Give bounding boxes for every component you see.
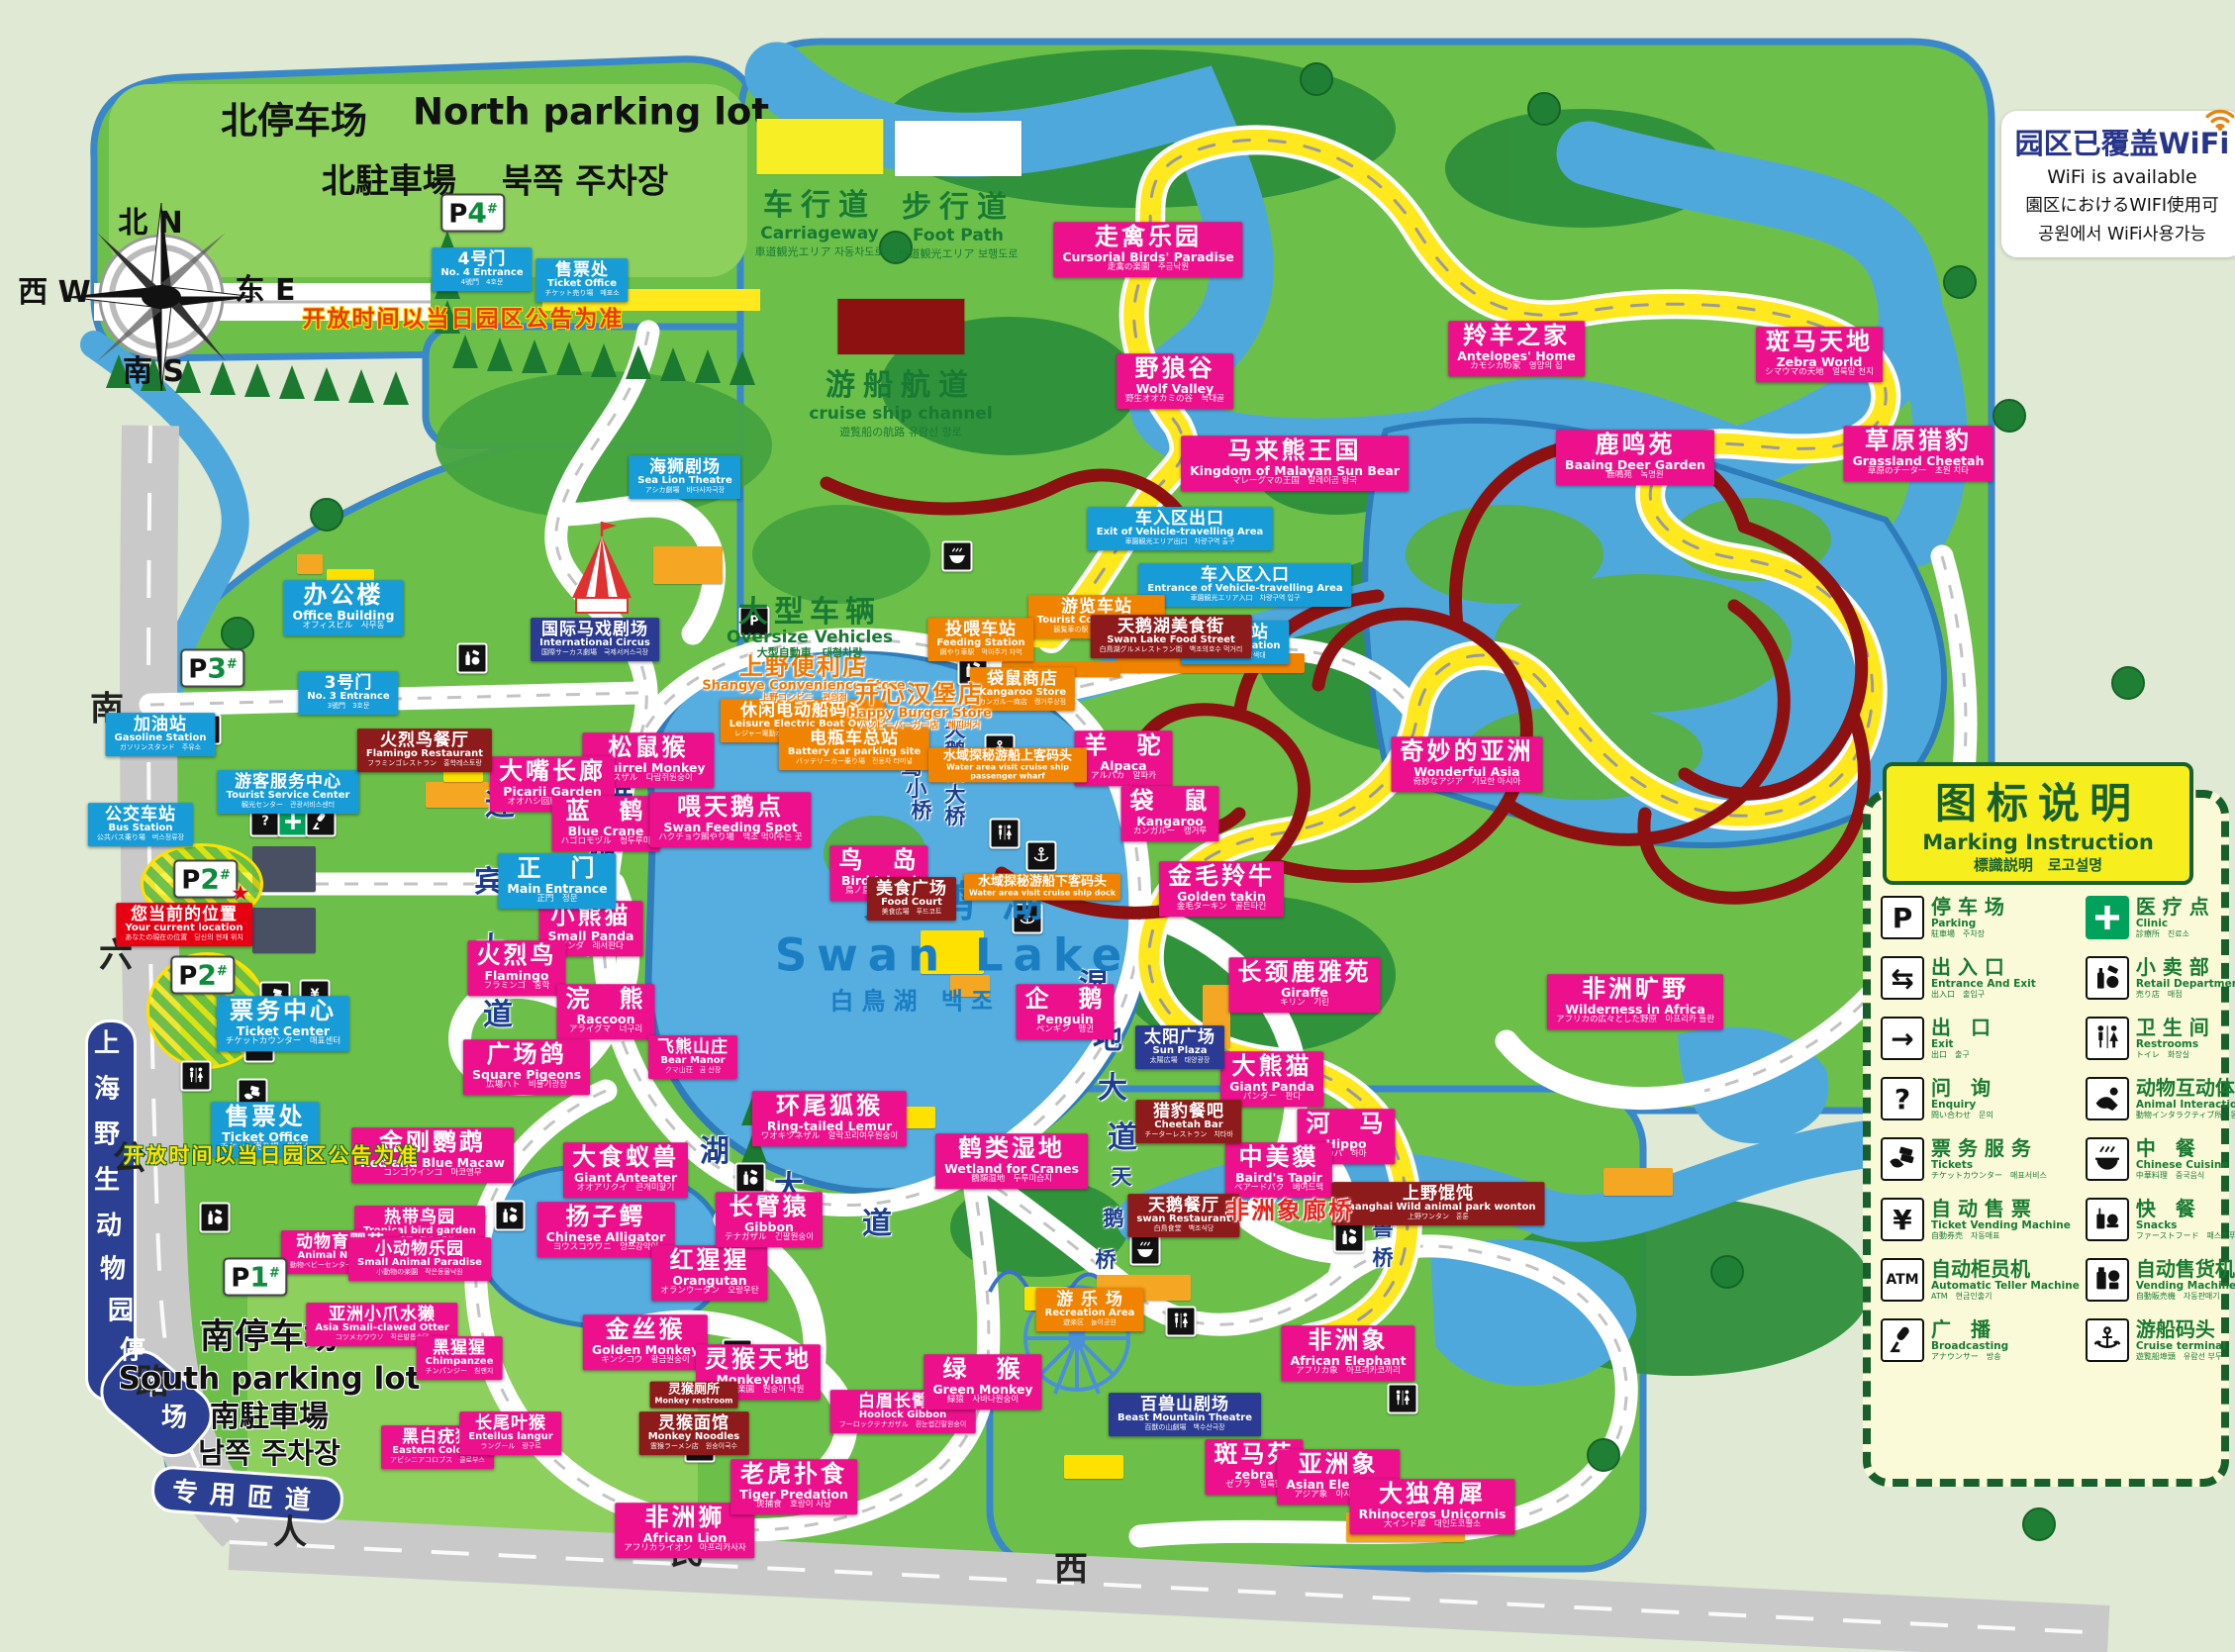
label-feeding-station: 投喂车站Feeding Station餌やり車駅 먹이주기 차역 — [927, 618, 1033, 661]
label-wonderful-asia: 奇妙的亚洲Wonderful Asia奇妙なアジア 기묘한 아시아 — [1392, 736, 1543, 792]
legend-item-tickets: 票 务 服 务Ticketsチケットカウンター 매표서비스 — [1881, 1137, 2080, 1181]
street-char: 湖 — [700, 1126, 729, 1170]
text-label-oversize-vehicles: 大型车辆Oversize Vehicles大型自動車 대형차량 — [727, 596, 893, 659]
label-cheetah-bar: 猎豹餐吧Cheetah Barチーターレストラン 치타바 — [1135, 1100, 1241, 1143]
tree-icon — [2111, 666, 2145, 700]
label-entellus-langur: 长尾叶猴Entellus langurラングール 랑구르 — [459, 1411, 561, 1455]
label-antelopes-home: 羚羊之家Antelopes' Homeカモシカの家 영양의 집 — [1448, 321, 1585, 376]
label-international-circus: 国际马戏剧场International Circus国際サーカス劇場 국제서커스… — [531, 618, 659, 661]
text-label-happy-burger-store: 开心汉堡店Happy Burger Storeハッピーバーガー店 해피버거 — [847, 682, 992, 732]
parking-icon: P — [1881, 896, 1924, 939]
north-parking-lot-title: 北停车场North parking lot 北駐車場북쪽 주차장 — [221, 91, 769, 203]
tvm-icon: ¥ — [1881, 1198, 1924, 1241]
legend-item-snacks: 快 餐Snacksファーストフード 패스트푸드 — [2086, 1198, 2235, 1241]
label-raccoon: 浣 熊Raccoonアライグマ 너구리 — [557, 984, 655, 1039]
label-gasoline-station: 加油站Gasoline Stationガソリンスタンド 주유소 — [106, 713, 216, 756]
label-entrance-of-vehicle-travelling-area: 车入区入口Entrance of Vehicle-travelling Area… — [1138, 563, 1351, 607]
label-rhinoceros-unicornis: 大独角犀Rhinoceros Unicornis大インド犀 대인도코뿔소 — [1350, 1479, 1515, 1534]
opening-hours-notice: 开放时间以当日园区公告为准 — [124, 1144, 420, 1167]
legend-item-clinic: 医 疗 点Clinic診療所 진료소 — [2086, 896, 2235, 939]
parking-badge-p3: P3# — [180, 649, 244, 688]
wifi-notice-box: 园区已覆盖WiFi WiFi is available 園区におけるWIFI使用… — [2001, 111, 2235, 257]
marking-instruction-items: P停 车 场Parking駐車場 주차장医 疗 点Clinic診療所 진료소⇆出… — [1881, 896, 2217, 1362]
label-grassland-cheetah: 草原猎豹Grassland Cheetah草原のチーター 초원 치타 — [1844, 426, 1993, 481]
building-footprint — [297, 554, 323, 574]
cruise-ship-channel-swatch — [837, 299, 964, 354]
label-water-area-visit-cruise-ship-dock: 水域探秘游船下客码头Water area visit cruise ship d… — [964, 874, 1120, 901]
street-char: 人 — [273, 1506, 307, 1554]
cuisine-icon — [942, 541, 973, 572]
label-penguin: 企 鹅Penguinペンギン 펭귄 — [1017, 984, 1115, 1039]
label-zebra-world: 斑马天地Zebra Worldシマウマの天地 얼룩말 천지 — [1756, 327, 1883, 382]
retail-icon — [735, 1163, 766, 1194]
zoo-park-map: 北 N 西 W 东 E 南 S 北停车场North parking lot 北駐… — [0, 0, 2235, 1652]
cruise-icon — [2086, 1318, 2129, 1362]
foot-path-swatch — [895, 121, 1021, 176]
parking-badge-p4: P4# — [440, 194, 505, 233]
label-water-area-visit-cruise-ship-passenger-wharf: 水域探秘游船上客码头Water area visit cruise ship p… — [928, 747, 1087, 782]
label-recreation-area: 游 乐 场Recreation Area遊楽区 놀이공원 — [1036, 1288, 1144, 1331]
legend-item-cruise-terminal: 游船码头Cruise terminal遊覧船埠頭 유람선 부두 — [2086, 1318, 2235, 1362]
label-gibbon: 长臂猿Gibbonテナガザル 긴팔원숭이 — [716, 1192, 823, 1247]
tree-icon — [1943, 265, 1977, 299]
compass-south-label: 南 S — [123, 346, 184, 390]
legend-item-automatic-teller-machine: ATM自动柜员机Automatic Teller MachineATM 현금인출… — [1881, 1258, 2080, 1302]
ramp-sign-char: 动 — [96, 1206, 122, 1242]
label-your-current-location: 您当前的位置Your current locationあなたの現在の位置 당신의… — [116, 903, 252, 946]
restroom-icon — [181, 1061, 212, 1092]
exit-icon: → — [1881, 1017, 1924, 1060]
label-small-animal-paradise: 小动物乐园Small Animal Paradise小動物の楽園 작은동물낙원 — [348, 1237, 491, 1281]
wifi-icon — [2203, 105, 2235, 131]
label-tiger-predation: 老虎扑食Tiger Predation虎捕食 호랑이 사냥 — [730, 1459, 857, 1514]
marking-instruction-header: 图标说明 Marking Instruction 標識説明 로고설명 — [1883, 762, 2193, 885]
street-char: 西 — [1054, 1542, 1088, 1591]
label-office-building: 办公楼Office Buildingオフィスビル 사무동 — [284, 580, 404, 635]
clinic-icon — [2086, 896, 2129, 939]
legend-item-animal-interaction-experiencingsite: 动物互动体验点Animal Interaction ExperiencingSi… — [2086, 1077, 2235, 1120]
parking-badge-p2: P2# — [173, 860, 238, 899]
label-bear-manor: 飞熊山庄Bear Manorクマ山荘 곰 산장 — [648, 1035, 737, 1079]
label-ticket-center: 票务中心Ticket Centerチケットカウンター 매표센터 — [217, 996, 349, 1051]
legend-item-ticket-vending-machine: ¥自 动 售 票Ticket Vending Machine自動券売 자동매표 — [1881, 1198, 2080, 1241]
label-ticket-office: 售票处Ticket Officeチケット売り場 매표소 — [535, 258, 628, 302]
label-no-3-entrance: 3号门No. 3 Entrance3號門 3호문 — [298, 671, 398, 715]
label-sun-plaza: 太阳广场Sun Plaza太陽広場 태양광장 — [1135, 1025, 1224, 1069]
carriageway-swatch — [756, 119, 883, 174]
vending-icon — [2086, 1258, 2129, 1302]
label-beast-mountain-theatre: 百兽山剧场Beast Mountain Theatre百獣の山劇場 백수산극장 — [1109, 1393, 1261, 1436]
label-square-pigeons: 广场鸽Square Pigeons広場ハト 비둘기광장 — [463, 1039, 590, 1095]
legend-item-restrooms: 卫 生 间Restroomsトイレ 화장실 — [2086, 1017, 2235, 1060]
label-giant-panda: 大熊猫Giant Pandaパンダー 판다 — [1220, 1051, 1323, 1107]
building-footprint — [653, 546, 723, 584]
retail-icon — [495, 1201, 526, 1231]
broadcast-icon — [1881, 1318, 1924, 1362]
label-ring-tailed-lemur: 环尾狐猴Ring-tailed Lemurワオキツネザル 알락꼬리여우원숭이 — [752, 1091, 907, 1146]
street-char: 桥 — [912, 795, 932, 825]
street-char: 鹅 — [1104, 1203, 1124, 1232]
path-legend-cruise-ship-channel: 游船航道cruise ship channel遊覧船の航路 유람선 항로 — [809, 299, 992, 439]
label-baird-s-tapir: 中美貘Baird's Tapirベアードバク 베어드맥 — [1225, 1142, 1332, 1198]
enquiry-icon: ? — [1881, 1077, 1924, 1120]
tree-icon — [2022, 1507, 2056, 1541]
label-swan-lake-food-street: 天鹅湖美食街Swan Lake Food Street白鳥湖グルメレストラン街 … — [1091, 615, 1252, 658]
label-baaing-deer-garden: 鹿鸣苑Baaing Deer Garden鹿鳴苑 녹명원 — [1556, 430, 1714, 485]
legend-item-enquiry: ?问 询Enquiry問い合わせ 문의 — [1881, 1077, 2080, 1120]
label-no-4-entrance: 4号门No. 4 Entrance4號門 4호문 — [432, 247, 532, 291]
retail-icon — [2086, 956, 2129, 1000]
label-green-monkey: 绿 猴Green Monkey緑猿 사바나원숭이 — [923, 1354, 1041, 1409]
label-chimpanzee: 黑猩猩Chimpanzeeチンパンジー 침팬지 — [417, 1336, 503, 1380]
restroom-icon — [1166, 1307, 1197, 1337]
legend-item-broadcasting: 广 播Broadcastingアナウンサー 방송 — [1881, 1318, 2080, 1362]
label-shanghai-wild-animal-park-wonton: 上野馄饨Shanghai Wild animal park wonton上野ワン… — [1332, 1182, 1545, 1225]
restroom-icon — [1388, 1384, 1418, 1414]
label-food-court: 美食广场Food Court美食広場 푸드코트 — [867, 877, 956, 921]
street-char: 道 — [862, 1199, 892, 1242]
legend-item-chinese-cuisine: 中 餐Chinese Cuisine中華料理 중국음식 — [2086, 1137, 2235, 1181]
label-kingdom-of-malayan-sun-bear: 马来熊王国Kingdom of Malayan Sun Bearマレーグマの王国… — [1181, 436, 1409, 491]
label-main-entrance: 正 门Main Entrance正門 정문 — [498, 853, 616, 909]
label-orangutan: 红猩猩Orangutanオランウータン 오랑우탄 — [651, 1245, 767, 1301]
street-char: 天 — [1112, 1161, 1132, 1191]
restroom-icon — [990, 819, 1020, 849]
label-flamingo-restaurant: 火烈鸟餐厅Flamingo Restaurantフラミンゴレストラン 홍학레스토… — [357, 729, 492, 772]
path-legend-foot-path: 步行道Foot Path歩道観光エリア 보행도로 — [895, 121, 1021, 261]
tree-icon — [1527, 92, 1561, 126]
legend-item-exit: →出 口Exit出口 출구 — [1881, 1017, 2080, 1060]
street-char: 桥 — [1096, 1244, 1117, 1274]
ramp-sign-char: 上 — [94, 1023, 120, 1060]
label-bus-station: 公交车站Bus Station公共バス乗り場 버스정류장 — [88, 803, 193, 846]
retail-icon — [457, 643, 488, 674]
atm-icon: ATM — [1881, 1258, 1924, 1302]
entrance-icon: ⇆ — [1881, 956, 1924, 1000]
label-wilderness-in-africa: 非洲旷野Wilderness in Africaアフリカの広々とした野原 아프리… — [1547, 974, 1723, 1029]
wifi-title: 园区已覆盖WiFi — [2015, 121, 2230, 162]
building-footprint — [1603, 1168, 1673, 1196]
parking-badge-p2: P2# — [170, 956, 235, 995]
label-giraffe: 长颈鹿雅苑Giraffeキリン 기린 — [1229, 957, 1381, 1013]
tree-icon — [1992, 399, 2026, 433]
tree-icon — [1300, 62, 1333, 96]
label-battery-car-parking-site: 电瓶车总站Battery car parking siteバッテリーカー乗り場 … — [779, 727, 929, 770]
path-legend-carriageway: 车行道Carriageway車道観光エリア 자동차도로 — [754, 119, 884, 259]
tree-icon — [221, 617, 254, 650]
label-sea-lion-theatre: 海狮剧场Sea Lion Theatreアシカ劇場 바다사자극장 — [629, 455, 740, 499]
retail-icon — [200, 1203, 231, 1233]
street-char: 道 — [483, 990, 513, 1033]
label-exit-of-vehicle-travelling-area: 车入区出口Exit of Vehicle-travelling Area車園観光… — [1088, 507, 1273, 550]
label-kangaroo: 袋 鼠Kangarooカンガルー 캥거루 — [1121, 786, 1219, 841]
street-char: 大 — [1098, 1063, 1127, 1107]
label-monkey-noodles: 灵猴面馆Monkey Noodles霊猴ラーメン店 원숭이국수 — [639, 1411, 749, 1455]
label-blue-crane: 蓝 鹤Blue Craneハゴロモヅル 청두루미 — [552, 796, 660, 851]
label-tourist-service-center: 游客服务中心Tourist Service Center観光センター 관광서비스… — [218, 770, 359, 814]
current-location-star-icon: ★ — [231, 882, 250, 907]
retail-icon — [1334, 1222, 1365, 1253]
label-monkey-restroom: 灵猴厕所Monkey restroom — [650, 1382, 738, 1409]
label-cursorial-birds-paradise: 走禽乐园Cursorial Birds' Paradise走禽の楽園 주금낙원 — [1053, 222, 1242, 277]
label-swan-restaurant: 天鹅餐厅swan Restaurant白鳥食堂 백조식당 — [1127, 1194, 1239, 1237]
legend-item-vending-machine: 自动售货机Vending Machine自動販売機 자동판매기 — [2086, 1258, 2235, 1302]
label-swan-feeding-spot: 喂天鹅点Swan Feeding Spotハクチョウ餌やり場 백조 먹이주는 곳 — [649, 792, 811, 847]
street-char: 桥 — [945, 801, 966, 830]
building-footprint — [426, 782, 489, 808]
label-wetland-for-cranes: 鹤类湿地Wetland for Cranes鶴類湿地 두루미습지 — [935, 1133, 1088, 1189]
restroom-icon — [2086, 1017, 2129, 1060]
label-african-elephant: 非洲象African Elephantアフリカ象 아프리카코끼리 — [1281, 1325, 1414, 1381]
ramp-sign-char: 物 — [100, 1249, 126, 1286]
legend-item-entrance-and-exit: ⇆出 入 口Entrance And Exit出入口 출입구 — [1881, 956, 2080, 1000]
street-char: 桥 — [1373, 1242, 1394, 1272]
street-char: 道 — [1108, 1113, 1137, 1156]
snacks-icon — [2086, 1198, 2129, 1241]
tree-icon — [1587, 1438, 1620, 1472]
tickets-icon — [1881, 1137, 1924, 1181]
label-golden-takin: 金毛羚牛Golden takin金毛ターキン 골든타킨 — [1159, 861, 1284, 917]
label-golden-monkey: 金丝猴Golden Monkeyキンシコウ 황금원숭이 — [583, 1314, 708, 1370]
label-flamingo: 火烈鸟Flamingoフラミンゴ 홍학 — [468, 940, 566, 996]
compass-east-label: 东 E — [236, 265, 296, 309]
tree-icon — [1710, 1255, 1744, 1289]
interaction-icon — [2086, 1077, 2129, 1120]
parking-badge-p1: P1# — [223, 1258, 287, 1297]
legend-item-retail-department: 小 卖 部Retail Department売り店 매점 — [2086, 956, 2235, 1000]
compass-west-label: 西 W — [18, 267, 91, 311]
legend-item-parking: P停 车 场Parking駐車場 주차장 — [1881, 896, 2080, 939]
label-wolf-valley: 野狼谷Wolf Valley野生オオカミの谷 늑대골 — [1117, 353, 1233, 409]
building-footprint — [1064, 1455, 1123, 1479]
cuisine-icon — [1130, 1235, 1161, 1266]
anchor-icon — [1026, 841, 1057, 872]
ramp-sign-char: 海 — [94, 1069, 120, 1106]
text-label-label: 非洲象廊桥 — [1225, 1198, 1354, 1223]
cuisine-icon — [2086, 1137, 2129, 1181]
tree-icon — [310, 498, 343, 532]
label-giant-anteater: 大食蚁兽Giant Anteaterオオアリクイ 큰개미핥기 — [563, 1142, 688, 1198]
opening-hours-notice: 开放时间以当日园区公告为准 — [303, 307, 625, 332]
building-footprint — [252, 908, 316, 953]
compass-north-label: 北 N — [118, 198, 183, 242]
label-alpaca: 羊 驼Alpacaアルパカ 알파카 — [1075, 730, 1173, 786]
